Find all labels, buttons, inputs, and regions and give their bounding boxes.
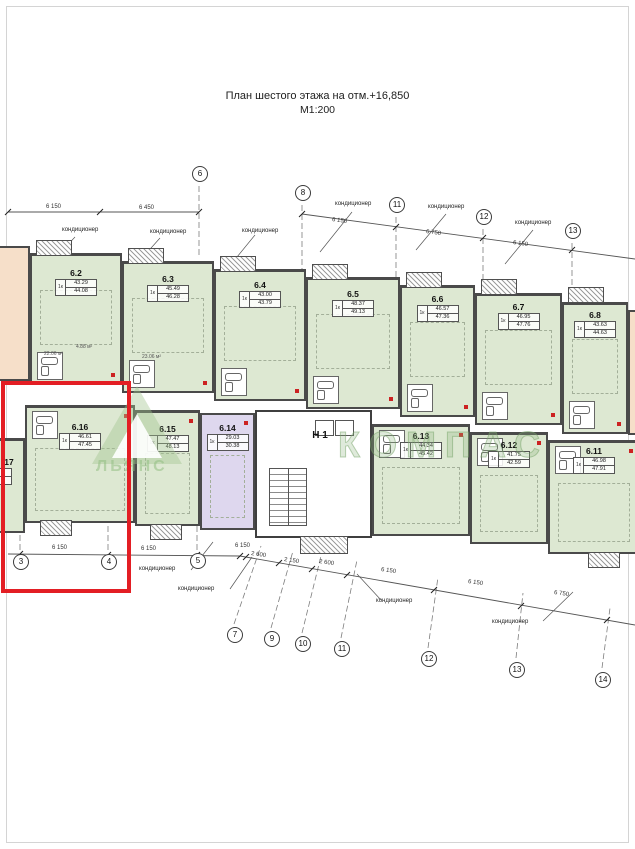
apartment-6-8[interactable]: 6.8 1к 43.6344.63	[562, 302, 628, 434]
room-area-note: 22.06 м²	[44, 351, 63, 357]
toilet-icon	[411, 398, 419, 408]
room-area-note: 23.06 м²	[142, 354, 161, 360]
toilet-icon	[559, 460, 567, 470]
ac-label: кондиционер	[335, 201, 371, 207]
axis-circle-11: 11	[389, 197, 405, 213]
apartment-id: 6.4	[237, 280, 283, 290]
ac-label: кондиционер	[492, 619, 528, 625]
watermark-kompas: КОМПАС	[338, 424, 549, 466]
area-box: 1к 43.0043.79	[239, 291, 281, 308]
riser-mark	[464, 405, 468, 409]
room-outline	[224, 306, 296, 361]
axis-circle-11b: 11	[334, 641, 350, 657]
apartment-6-14[interactable]: 6.14 1к 29.0330.38	[200, 413, 255, 530]
apartment-6-5[interactable]: 6.5 1к 48.3749.13	[306, 277, 400, 409]
room-outline	[40, 290, 112, 345]
ac-label: кондиционер	[428, 204, 464, 210]
ac-label: кондиционер	[242, 228, 278, 234]
axis-circle-12b: 12	[421, 651, 437, 667]
balcony	[406, 272, 442, 288]
ac-label: кондиционер	[376, 598, 412, 604]
balcony	[150, 524, 182, 540]
area-box: 1к 43.6344.63	[574, 321, 616, 338]
stair-flight	[269, 468, 307, 526]
axis-circle-6: 6	[192, 166, 208, 182]
area-box: 1к 45.4946.28	[147, 285, 189, 302]
toilet-icon	[225, 382, 233, 392]
apartment-6-7[interactable]: 6.7 1к 46.9547.76	[475, 293, 562, 425]
room-outline	[382, 467, 460, 524]
riser-mark	[551, 413, 555, 417]
bathroom-block	[569, 401, 595, 429]
area-box: 1к 29.0330.38	[207, 434, 249, 451]
room-outline	[210, 455, 245, 518]
apartment-id: 6.14	[205, 423, 251, 433]
ac-label: кондиционер	[62, 227, 98, 233]
riser-mark	[629, 449, 633, 453]
apartment-id: 6.8	[572, 310, 618, 320]
axis-circle-10: 10	[295, 636, 311, 652]
toilet-icon	[486, 406, 494, 416]
room-outline	[480, 475, 538, 532]
axis-circle-7: 7	[227, 627, 243, 643]
area-box: 1к 46.9847.91	[573, 457, 615, 474]
title-scale: М1:200	[0, 104, 635, 116]
room-outline	[316, 314, 390, 369]
ac-label: кондиционер	[178, 586, 214, 592]
balcony	[481, 279, 517, 295]
bathtub-icon	[573, 406, 590, 414]
bathroom-block	[313, 376, 339, 404]
bathtub-icon	[225, 373, 242, 381]
core-label: Н 1	[297, 430, 343, 441]
riser-mark	[389, 397, 393, 401]
area-box: 1к 46.9547.76	[498, 313, 540, 330]
highlight-rectangle	[1, 381, 131, 593]
balcony	[220, 256, 256, 272]
ac-label: кондиционер	[515, 220, 551, 226]
apartment-6-6[interactable]: 6.6 1к 46.5747.36	[400, 285, 475, 417]
bathtub-icon	[133, 365, 150, 373]
dim-label: 6 150	[141, 546, 156, 552]
apartment-partial-top-right[interactable]	[628, 310, 635, 435]
riser-mark	[203, 381, 207, 385]
apartment-6-2[interactable]: 6.2 1к 43.2944.08	[30, 253, 122, 385]
axis-circle-9: 9	[264, 631, 280, 647]
axis-circle-5: 5	[190, 553, 206, 569]
title-text: План шестого этажа на отм.+16,850	[0, 90, 635, 102]
apartment-id: 6.11	[571, 446, 617, 456]
apartment-id: 6.6	[415, 294, 461, 304]
toilet-icon	[573, 415, 581, 425]
room-outline	[572, 339, 618, 394]
apartment-id: 6.2	[53, 268, 99, 278]
apartment-id: 6.3	[145, 274, 191, 284]
drawing-title: План шестого этажа на отм.+16,850 М1:200	[0, 90, 635, 116]
entrance-canopy	[300, 536, 348, 554]
apartment-6-4[interactable]: 6.4 1к 43.0043.79	[214, 269, 306, 401]
room-outline	[558, 483, 630, 542]
area-box: 1к 48.3749.13	[332, 300, 374, 317]
bathroom-block	[129, 360, 155, 388]
riser-mark	[189, 419, 193, 423]
bathtub-icon	[317, 381, 334, 389]
balcony	[568, 287, 604, 303]
area-box: 1к 46.5747.36	[417, 305, 459, 322]
balcony	[36, 240, 72, 256]
axis-circle-14: 14	[595, 672, 611, 688]
room-outline	[132, 298, 204, 353]
riser-mark	[617, 422, 621, 426]
toilet-icon	[133, 374, 141, 384]
bathtub-icon	[41, 357, 58, 365]
balcony	[312, 264, 348, 280]
apartment-id: 6.5	[330, 289, 376, 299]
dim-label: 6 450	[139, 205, 154, 211]
axis-circle-13: 13	[565, 223, 581, 239]
bathtub-icon	[486, 397, 503, 405]
riser-mark	[111, 373, 115, 377]
bathroom-block	[407, 384, 433, 412]
dim-label: 6 150	[46, 204, 61, 210]
bathtub-icon	[411, 389, 428, 397]
ac-label: кондиционер	[150, 229, 186, 235]
toilet-icon	[41, 366, 49, 376]
axis-circle-8: 8	[295, 185, 311, 201]
balcony	[588, 552, 620, 568]
balcony	[128, 248, 164, 264]
riser-mark	[295, 389, 299, 393]
bathroom-block	[221, 368, 247, 396]
room-area-note: 4.88 м²	[76, 344, 92, 350]
axis-circle-13b: 13	[509, 662, 525, 678]
toilet-icon	[317, 390, 325, 400]
ac-label: кондиционер	[139, 566, 175, 572]
dim-label: 6 150	[235, 543, 250, 549]
apartment-id: 6.7	[496, 302, 542, 312]
apartment-6-3[interactable]: 6.3 1к 45.4946.28	[122, 261, 214, 393]
bathroom-block	[482, 392, 508, 420]
floor-plan-sheet: План шестого этажа на отм.+16,850 М1:200…	[0, 0, 635, 849]
room-outline	[410, 322, 465, 377]
area-box: 1к 43.2944.08	[55, 279, 97, 296]
room-outline	[485, 330, 552, 385]
apartment-6-11[interactable]: 6.11 1к 46.9847.91	[548, 440, 635, 554]
axis-circle-12: 12	[476, 209, 492, 225]
apartment-partial-top-left[interactable]	[0, 246, 30, 381]
